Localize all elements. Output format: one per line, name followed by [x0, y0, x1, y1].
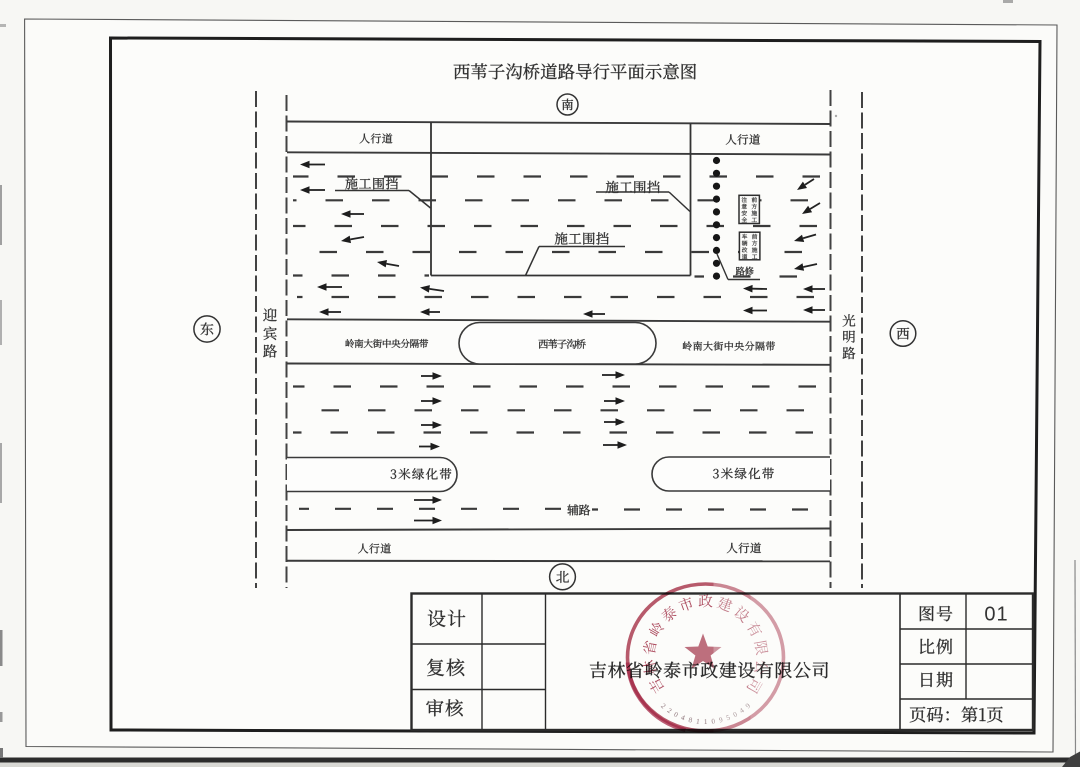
- svg-text:1: 1: [704, 718, 708, 726]
- svg-text:01: 01: [984, 604, 1008, 626]
